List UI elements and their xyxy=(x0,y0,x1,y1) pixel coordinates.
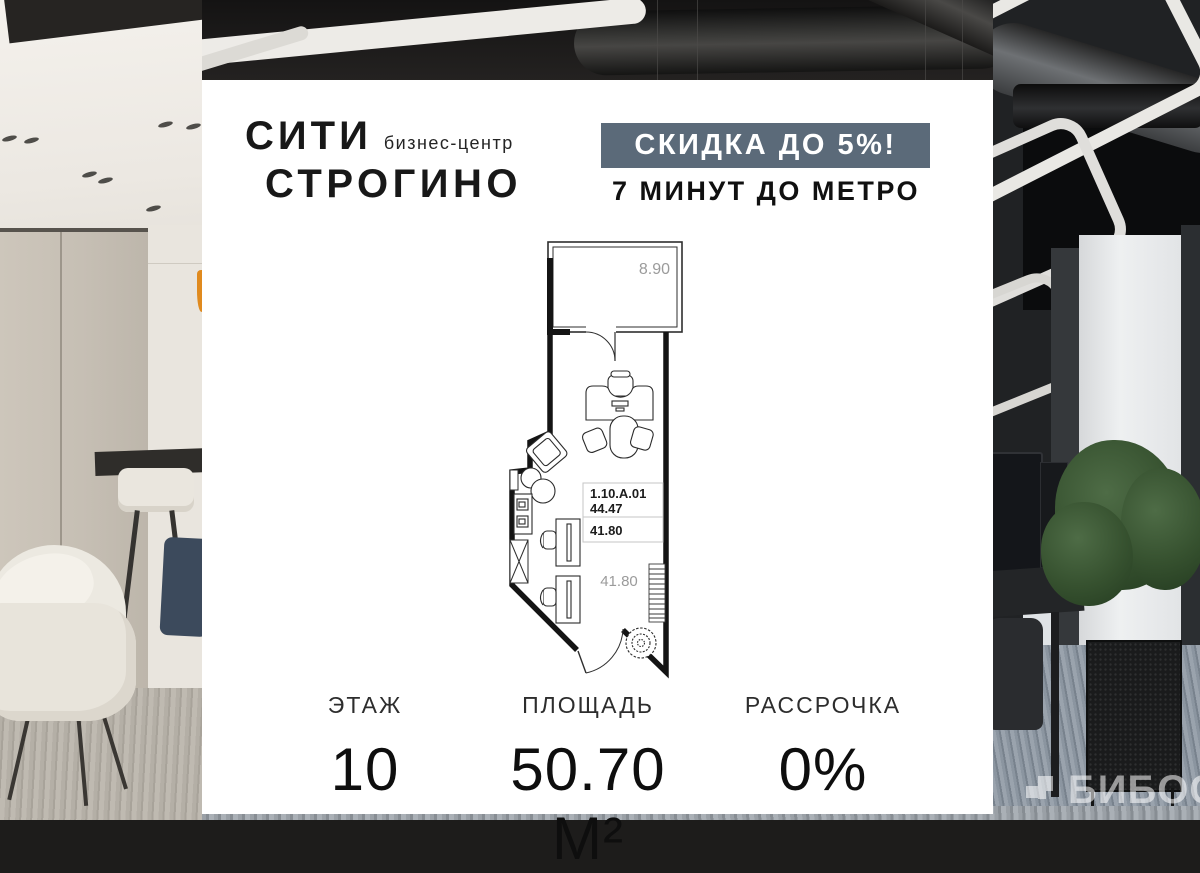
bg-cable xyxy=(657,0,658,82)
stat-area: ПЛОЩАДЬ 50.70 М² xyxy=(468,692,708,873)
plan-room-area-floor: 41.80 xyxy=(600,573,638,590)
page: { "card": { "logo": { "line1": "СИТИ", "… xyxy=(0,0,1200,820)
bg-wall-line xyxy=(148,263,210,264)
plan-unit-room-area: 41.80 xyxy=(590,523,623,538)
plan-radiator xyxy=(649,564,665,622)
stat-floor-label: ЭТАЖ xyxy=(245,692,485,719)
logo-line2: СТРОГИНО xyxy=(265,162,522,206)
logo-line1: СИТИ xyxy=(245,114,372,158)
bg-top-ceiling xyxy=(202,0,993,82)
plan-wardrobe xyxy=(510,540,528,583)
plan-unit-number: 1.10.A.01 xyxy=(590,486,646,501)
bg-monitor xyxy=(993,452,1043,578)
bg-stool-seat xyxy=(118,468,194,512)
stat-area-label: ПЛОЩАДЬ xyxy=(468,692,708,719)
stat-area-value: 50.70 М² xyxy=(468,735,708,873)
discount-banner: СКИДКА ДО 5%! xyxy=(601,123,930,168)
plan-window xyxy=(510,470,518,490)
bg-plant-foliage xyxy=(1121,468,1200,590)
bg-office-chair xyxy=(993,618,1043,730)
watermark-logo-icon xyxy=(1026,774,1060,808)
bg-cable xyxy=(962,0,963,82)
bg-right-interior xyxy=(993,0,1200,820)
plan-balcony-area: 8.90 xyxy=(639,261,670,278)
bg-cable xyxy=(925,0,926,82)
stat-floor: ЭТАЖ 10 xyxy=(245,692,485,804)
bg-cable xyxy=(697,0,698,82)
brand-logo: СИТИ бизнес-центр СТРОГИНО xyxy=(245,114,522,206)
watermark: БИБОСС xyxy=(1026,768,1200,813)
plan-unit-label: 1.10.A.01 44.47 41.80 xyxy=(583,483,663,542)
floor-plan: 8.90 41.80 1.10.A.01 44.47 41.80 xyxy=(498,236,688,681)
stat-installment-label: РАССРОЧКА xyxy=(703,692,943,719)
stat-installment-value: 0% xyxy=(703,735,943,804)
plan-unit-total-area: 44.47 xyxy=(590,501,623,516)
plan-balcony xyxy=(547,242,682,361)
metro-subtitle: 7 МИНУТ ДО МЕТРО xyxy=(582,176,950,207)
bg-left-interior xyxy=(0,0,210,820)
stat-installment: РАССРОЧКА 0% xyxy=(703,692,943,804)
bg-armchair xyxy=(0,545,138,795)
logo-tagline: бизнес-центр xyxy=(384,133,514,154)
watermark-text: БИБОСС xyxy=(1068,768,1200,813)
listing-card: СИТИ бизнес-центр СТРОГИНО СКИДКА ДО 5%!… xyxy=(202,80,993,814)
stat-floor-value: 10 xyxy=(245,735,485,804)
plan-entrance-door xyxy=(578,629,623,673)
